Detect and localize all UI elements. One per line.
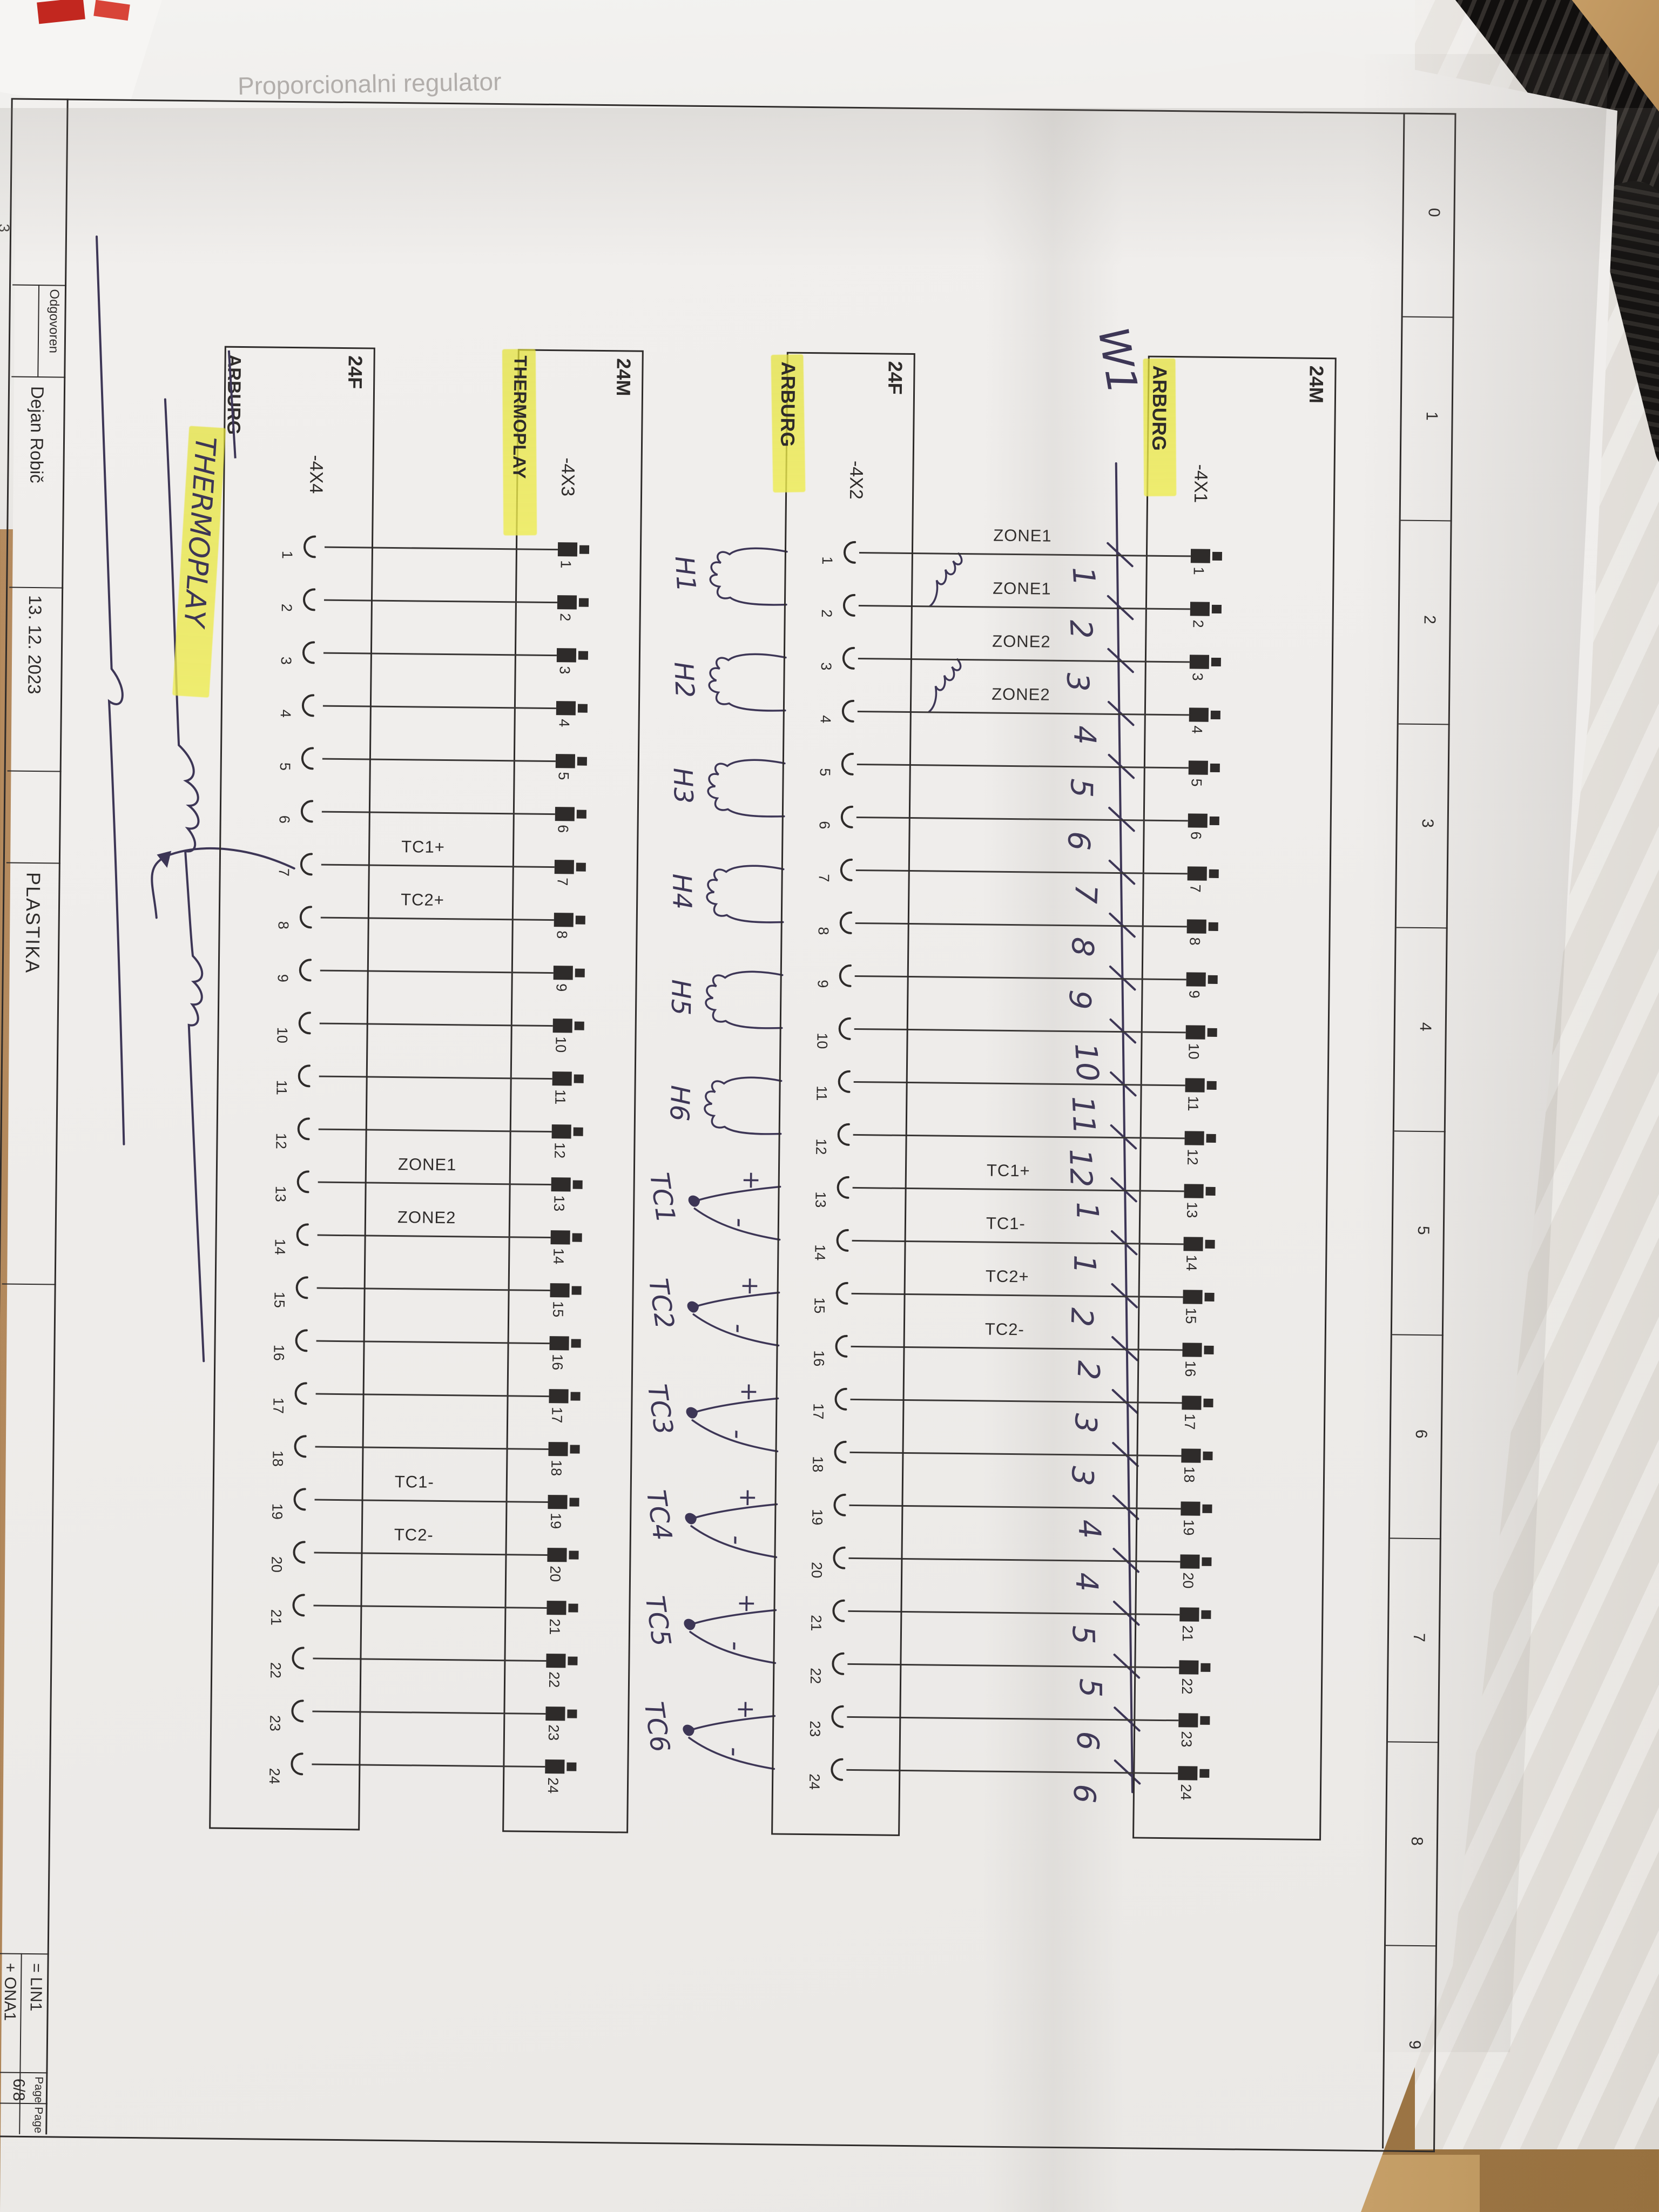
- pin-number: 14: [1183, 1255, 1199, 1271]
- pin-number: 4: [817, 715, 834, 723]
- pin-number: 9: [1185, 990, 1202, 998]
- terminal-pin: [1184, 1184, 1203, 1198]
- handwritten-wire-number: 4: [1068, 1572, 1104, 1592]
- pin-number: 10: [552, 1036, 569, 1053]
- grid-number: 9: [1405, 2040, 1424, 2049]
- handwritten-wire-number: 1: [1065, 565, 1102, 586]
- grid-number: 8: [1407, 1837, 1426, 1846]
- pin-number: 4: [556, 719, 572, 727]
- terminal-pin: [1188, 813, 1208, 827]
- pin-number: 8: [275, 921, 292, 929]
- terminal-pin: [1183, 1290, 1202, 1304]
- pin-number: 3: [1189, 672, 1205, 680]
- pin-number: 24: [266, 1768, 282, 1784]
- pin-number: 11: [551, 1089, 568, 1104]
- pin-number: 2: [818, 609, 835, 617]
- pin-number: 24: [1177, 1784, 1194, 1800]
- pin-number: 12: [551, 1142, 568, 1158]
- pin-number: 8: [1186, 937, 1203, 945]
- tc-minus-sign: -: [723, 1429, 754, 1439]
- handwritten-wire-number: 11: [1065, 1095, 1102, 1135]
- handwritten-wire-number: 8: [1064, 936, 1101, 957]
- tc-plus-sign: +: [734, 1488, 761, 1508]
- pin-number: 5: [817, 768, 833, 776]
- schematic-drawing: Odgovoren Dejan Robič 13. 12. 2023 PLAST…: [0, 73, 1481, 2174]
- pin-number: 11: [1184, 1096, 1201, 1111]
- wire-label: TC2+: [401, 890, 507, 911]
- pin-number: 16: [549, 1354, 565, 1370]
- heater-label: H6: [664, 1085, 695, 1122]
- connector-type-label: 24M: [1305, 366, 1328, 403]
- terminal-pin: [1190, 655, 1209, 669]
- handwritten-wire-number: 6: [1067, 1784, 1102, 1804]
- handwritten-wire-number: 1: [1067, 1255, 1102, 1274]
- terminal-pin: [577, 810, 586, 819]
- pin-number: 8: [815, 927, 832, 935]
- terminal-pin: [575, 969, 585, 977]
- pin-number: 2: [1190, 619, 1206, 628]
- terminal-pin: [1202, 1505, 1212, 1513]
- tc-minus-sign: -: [721, 1535, 753, 1545]
- terminal-pin: [1181, 1448, 1201, 1462]
- pin-number: 6: [816, 821, 833, 829]
- terminal-pin: [1199, 1769, 1209, 1778]
- connector-brand: ARBURG: [1148, 366, 1171, 451]
- terminal-pin: [1184, 1131, 1204, 1145]
- terminal-pin: [1206, 1187, 1216, 1196]
- terminal-pin: [1182, 1343, 1202, 1357]
- pin-number: 14: [550, 1248, 567, 1264]
- handwritten-wire-number: 12: [1062, 1149, 1098, 1188]
- pin-number: 23: [545, 1724, 562, 1741]
- pin-number: 9: [814, 980, 831, 988]
- grid-number: 1: [1422, 412, 1441, 421]
- pin-number: 16: [810, 1350, 827, 1366]
- grid-number: 2: [1420, 615, 1439, 624]
- pin-number: 23: [1178, 1731, 1195, 1747]
- pin-number: 1: [279, 551, 295, 559]
- pin-number: 1: [1190, 567, 1207, 575]
- terminal-pin: [1212, 552, 1222, 561]
- terminal-pin: [555, 860, 574, 874]
- terminal-pin: [555, 807, 575, 821]
- terminal-pin: [546, 1654, 565, 1668]
- grid-number: 7: [1410, 1633, 1428, 1642]
- wire-label: ZONE1: [993, 526, 1099, 547]
- terminal-pin: [1189, 760, 1208, 774]
- terminal-pin: [551, 1230, 570, 1244]
- pin-number: 19: [268, 1503, 285, 1520]
- terminal-pin: [548, 1495, 567, 1509]
- terminal-pin: [1210, 817, 1219, 825]
- pin-number: 21: [546, 1618, 563, 1635]
- pin-number: 21: [1179, 1625, 1196, 1641]
- connector-type-label: 24F: [343, 355, 367, 389]
- terminal-pin: [1189, 707, 1209, 721]
- pin-number: 13: [550, 1195, 567, 1211]
- pin-number: 10: [813, 1033, 830, 1049]
- terminal-pin: [1201, 1663, 1210, 1672]
- terminal-pin: [1206, 1134, 1216, 1143]
- pin-number: 6: [276, 815, 293, 824]
- pin-number: 20: [808, 1562, 825, 1578]
- terminal-pin: [567, 1762, 576, 1771]
- pin-number: 12: [1184, 1149, 1201, 1165]
- terminal-pin: [550, 1283, 569, 1297]
- wire-label: ZONE2: [397, 1208, 503, 1228]
- pin-number: 4: [1188, 725, 1205, 733]
- tc-minus-sign: -: [719, 1746, 751, 1757]
- pin-number: 7: [815, 874, 832, 882]
- heater-label: H4: [666, 873, 697, 909]
- terminal-pin: [1204, 1293, 1214, 1301]
- heater-label: H2: [668, 661, 700, 698]
- terminal-pin: [1201, 1610, 1211, 1619]
- pin-number: 12: [812, 1138, 829, 1155]
- terminal-pin: [558, 542, 577, 556]
- terminal-pin: [549, 1336, 569, 1350]
- terminal-pin: [579, 545, 589, 554]
- handwritten-wire-number: 5: [1065, 1625, 1101, 1645]
- handwritten-wire-number: 6: [1069, 1731, 1104, 1750]
- connector-box: [209, 346, 375, 1831]
- handwritten-wire-number: 2: [1062, 619, 1098, 639]
- terminal-pin: [576, 863, 586, 872]
- pin-number: 16: [1182, 1360, 1198, 1377]
- pin-number: 5: [1188, 778, 1204, 786]
- pin-number: 15: [1182, 1307, 1199, 1324]
- terminal-pin: [552, 1071, 572, 1085]
- pin-number: 19: [808, 1509, 825, 1525]
- pin-number: 20: [547, 1566, 563, 1582]
- pin-number: 5: [276, 763, 293, 771]
- terminal-pin: [1208, 1028, 1217, 1037]
- pin-number: 1: [557, 560, 574, 568]
- terminal-pin: [1205, 1240, 1215, 1249]
- pin-number: 17: [810, 1403, 826, 1419]
- pin-number: 3: [556, 666, 573, 674]
- terminal-pin: [571, 1339, 581, 1347]
- terminal-pin: [570, 1392, 580, 1400]
- terminal-pin: [579, 598, 589, 607]
- pin-number: 17: [548, 1407, 565, 1423]
- pin-number: 16: [270, 1345, 287, 1361]
- terminal-pin: [556, 701, 576, 715]
- terminal-pin: [1182, 1395, 1201, 1410]
- handwritten-wire-number: 3: [1064, 1465, 1101, 1487]
- wire-label: ZONE1: [398, 1155, 504, 1175]
- grid-number: 0: [1425, 208, 1443, 217]
- pin-number: 18: [548, 1460, 564, 1476]
- pin-number: 2: [557, 613, 574, 621]
- terminal-pin: [1200, 1716, 1210, 1725]
- terminal-pin: [568, 1656, 577, 1665]
- terminal-pin: [569, 1550, 578, 1559]
- handwritten-wire-number: 1: [1069, 1202, 1104, 1221]
- terminal-pin: [1178, 1766, 1197, 1780]
- pin-number: 24: [806, 1773, 822, 1790]
- pin-number: 13: [272, 1186, 288, 1202]
- terminal-pin: [577, 757, 587, 766]
- terminal-pin: [1187, 919, 1206, 933]
- pin-number: 21: [267, 1609, 284, 1626]
- pin-number: 22: [1178, 1678, 1195, 1694]
- terminal-pin: [1178, 1713, 1198, 1727]
- terminal-pin: [547, 1548, 567, 1562]
- heater-label: H5: [665, 979, 696, 1015]
- terminal-pin: [578, 651, 588, 660]
- terminal-pin: [553, 1019, 572, 1033]
- pin-number: 6: [1187, 831, 1204, 839]
- terminal-pin: [554, 913, 574, 927]
- wire-label: TC1-: [395, 1472, 501, 1493]
- pin-number: 12: [272, 1133, 289, 1149]
- wire-label: TC2-: [394, 1525, 500, 1546]
- handwritten-wire-number: 5: [1064, 778, 1099, 798]
- terminal-pin: [545, 1707, 565, 1721]
- terminal-pin: [569, 1498, 579, 1506]
- terminal-pin: [548, 1442, 568, 1456]
- pin-number: 7: [275, 868, 292, 876]
- pin-number: 11: [813, 1085, 829, 1101]
- terminal-pin: [568, 1603, 578, 1612]
- pin-number: 18: [269, 1451, 286, 1467]
- handwritten-wire-number: 2: [1063, 1307, 1099, 1327]
- pin-number: 8: [553, 930, 570, 939]
- pin-number: 14: [811, 1244, 828, 1260]
- terminal-pin: [1186, 1025, 1205, 1039]
- connector-box: [1132, 356, 1337, 1841]
- connector-brand: ARBURG: [776, 361, 800, 447]
- terminal-pin: [547, 1601, 566, 1615]
- pin-number: 18: [809, 1456, 826, 1472]
- handwritten-wire-number: 3: [1067, 1412, 1103, 1434]
- connector-tag: -4X4: [305, 455, 327, 494]
- terminal-pin: [1188, 866, 1207, 880]
- terminal-pin: [1209, 869, 1219, 878]
- tc-minus-sign: -: [720, 1641, 752, 1651]
- terminal-pin: [1212, 605, 1222, 613]
- handwritten-wire-number: 6: [1061, 831, 1096, 851]
- terminal-pin: [545, 1759, 564, 1773]
- pin-number: 19: [1180, 1519, 1197, 1535]
- pin-number: 1: [819, 556, 835, 564]
- pin-number: 17: [269, 1398, 286, 1414]
- terminal-pin: [1210, 764, 1220, 772]
- pin-number: 2: [278, 604, 295, 612]
- pin-number: 20: [268, 1556, 285, 1573]
- terminal-pin: [572, 1233, 582, 1242]
- terminal-pin: [557, 595, 577, 609]
- pin-number: 22: [267, 1662, 284, 1678]
- handwritten-wire-number: 2: [1070, 1360, 1107, 1381]
- pin-number: 23: [806, 1721, 823, 1737]
- connector-brand: THERMOPLAY: [509, 355, 530, 478]
- pin-number: 23: [266, 1715, 283, 1731]
- tc-plus-sign: +: [735, 1382, 763, 1402]
- pin-number: 24: [544, 1777, 561, 1793]
- tc-plus-sign: +: [732, 1700, 759, 1719]
- pin-number: 3: [818, 662, 834, 670]
- terminal-pin: [1179, 1607, 1199, 1621]
- terminal-pin: [573, 1181, 583, 1189]
- tc-plus-sign: +: [737, 1276, 764, 1296]
- terminal-pin: [552, 1124, 571, 1138]
- terminal-pin: [570, 1445, 579, 1453]
- wire-label: TC1+: [401, 837, 507, 858]
- terminal-pin: [549, 1389, 568, 1403]
- grid-number: 6: [1412, 1429, 1430, 1439]
- pin-number: 14: [271, 1239, 288, 1255]
- terminal-pin: [1190, 602, 1210, 616]
- terminal-pin: [1207, 1081, 1217, 1090]
- tc-plus-sign: +: [733, 1594, 760, 1614]
- handwritten-wire-number: 4: [1071, 1519, 1107, 1540]
- pin-number: 20: [1179, 1572, 1196, 1588]
- pin-number: 5: [555, 772, 572, 780]
- connector-type-label: 24M: [612, 358, 635, 396]
- terminal-pin: [1191, 549, 1210, 563]
- pin-number: 15: [811, 1297, 827, 1313]
- pin-number: 11: [273, 1080, 289, 1095]
- tc-minus-sign: -: [725, 1217, 756, 1228]
- pin-number: 18: [1181, 1466, 1197, 1482]
- terminal-pin: [1186, 972, 1206, 986]
- connector-type-label: 24F: [884, 361, 907, 394]
- terminal-pin: [1181, 1501, 1200, 1515]
- connector-tag: -4X2: [845, 461, 867, 500]
- terminal-pin: [1185, 1078, 1205, 1092]
- tc-minus-sign: -: [724, 1323, 755, 1333]
- pin-number: 13: [1183, 1202, 1200, 1218]
- pin-number: 7: [554, 878, 570, 886]
- heater-label: H3: [667, 767, 699, 804]
- terminal-pin: [575, 1022, 584, 1030]
- pin-number: 22: [807, 1668, 824, 1684]
- heater-label: H1: [669, 555, 702, 593]
- terminal-pin: [1209, 922, 1218, 931]
- grid-number: 4: [1416, 1022, 1434, 1031]
- handwritten-wire-number: 5: [1073, 1678, 1108, 1697]
- connector-box: [771, 352, 915, 1836]
- terminal-pin: [1211, 658, 1221, 666]
- pin-number: 15: [549, 1301, 566, 1317]
- terminal-pin: [554, 966, 573, 980]
- terminal-pin: [1183, 1237, 1203, 1251]
- handwritten-wire-number: 7: [1067, 884, 1103, 905]
- tc-plus-sign: +: [738, 1170, 765, 1190]
- terminal-pin: [574, 1128, 583, 1136]
- pin-number: 9: [552, 983, 569, 992]
- handwritten-wire-number: 4: [1067, 725, 1102, 745]
- terminal-pin: [1202, 1557, 1211, 1566]
- pin-number: 10: [273, 1027, 290, 1043]
- pin-number: 9: [274, 974, 291, 982]
- connector-tag: -4X1: [1190, 464, 1211, 503]
- pin-number: 7: [1186, 884, 1203, 892]
- terminal-pin: [557, 648, 576, 662]
- terminal-pin: [567, 1709, 577, 1718]
- pin-number: 10: [1185, 1043, 1202, 1059]
- terminal-pin: [574, 1075, 584, 1083]
- terminal-pin: [576, 916, 585, 925]
- connector-tag: -4X3: [557, 457, 578, 496]
- terminal-pin: [1211, 711, 1220, 719]
- pin-number: 4: [277, 710, 294, 718]
- pin-number: 13: [812, 1191, 828, 1208]
- terminal-pin: [551, 1177, 571, 1191]
- handwritten-wire-number: 9: [1061, 989, 1098, 1011]
- pin-number: 6: [554, 825, 571, 833]
- grid-number: 5: [1414, 1226, 1432, 1235]
- terminal-pin: [578, 704, 588, 713]
- terminal-pin: [1208, 975, 1218, 984]
- terminal-pin: [1204, 1346, 1213, 1354]
- grid-number: 3: [1418, 819, 1437, 828]
- terminal-pin: [556, 754, 575, 768]
- terminal-pin: [1180, 1554, 1199, 1568]
- terminal-pin: [1203, 1452, 1212, 1460]
- handwritten-wire-number: 10: [1068, 1042, 1105, 1083]
- pin-number: 19: [547, 1513, 564, 1529]
- pin-number: 21: [807, 1615, 824, 1631]
- pin-number: 22: [545, 1671, 562, 1688]
- pin-number: 17: [1181, 1413, 1198, 1429]
- pin-number: 15: [271, 1292, 287, 1308]
- terminal-pin: [1179, 1660, 1198, 1674]
- handwritten-wire-number: 3: [1060, 672, 1095, 692]
- terminal-pin: [572, 1286, 582, 1294]
- pin-number: 3: [278, 657, 294, 665]
- terminal-pin: [1203, 1399, 1213, 1407]
